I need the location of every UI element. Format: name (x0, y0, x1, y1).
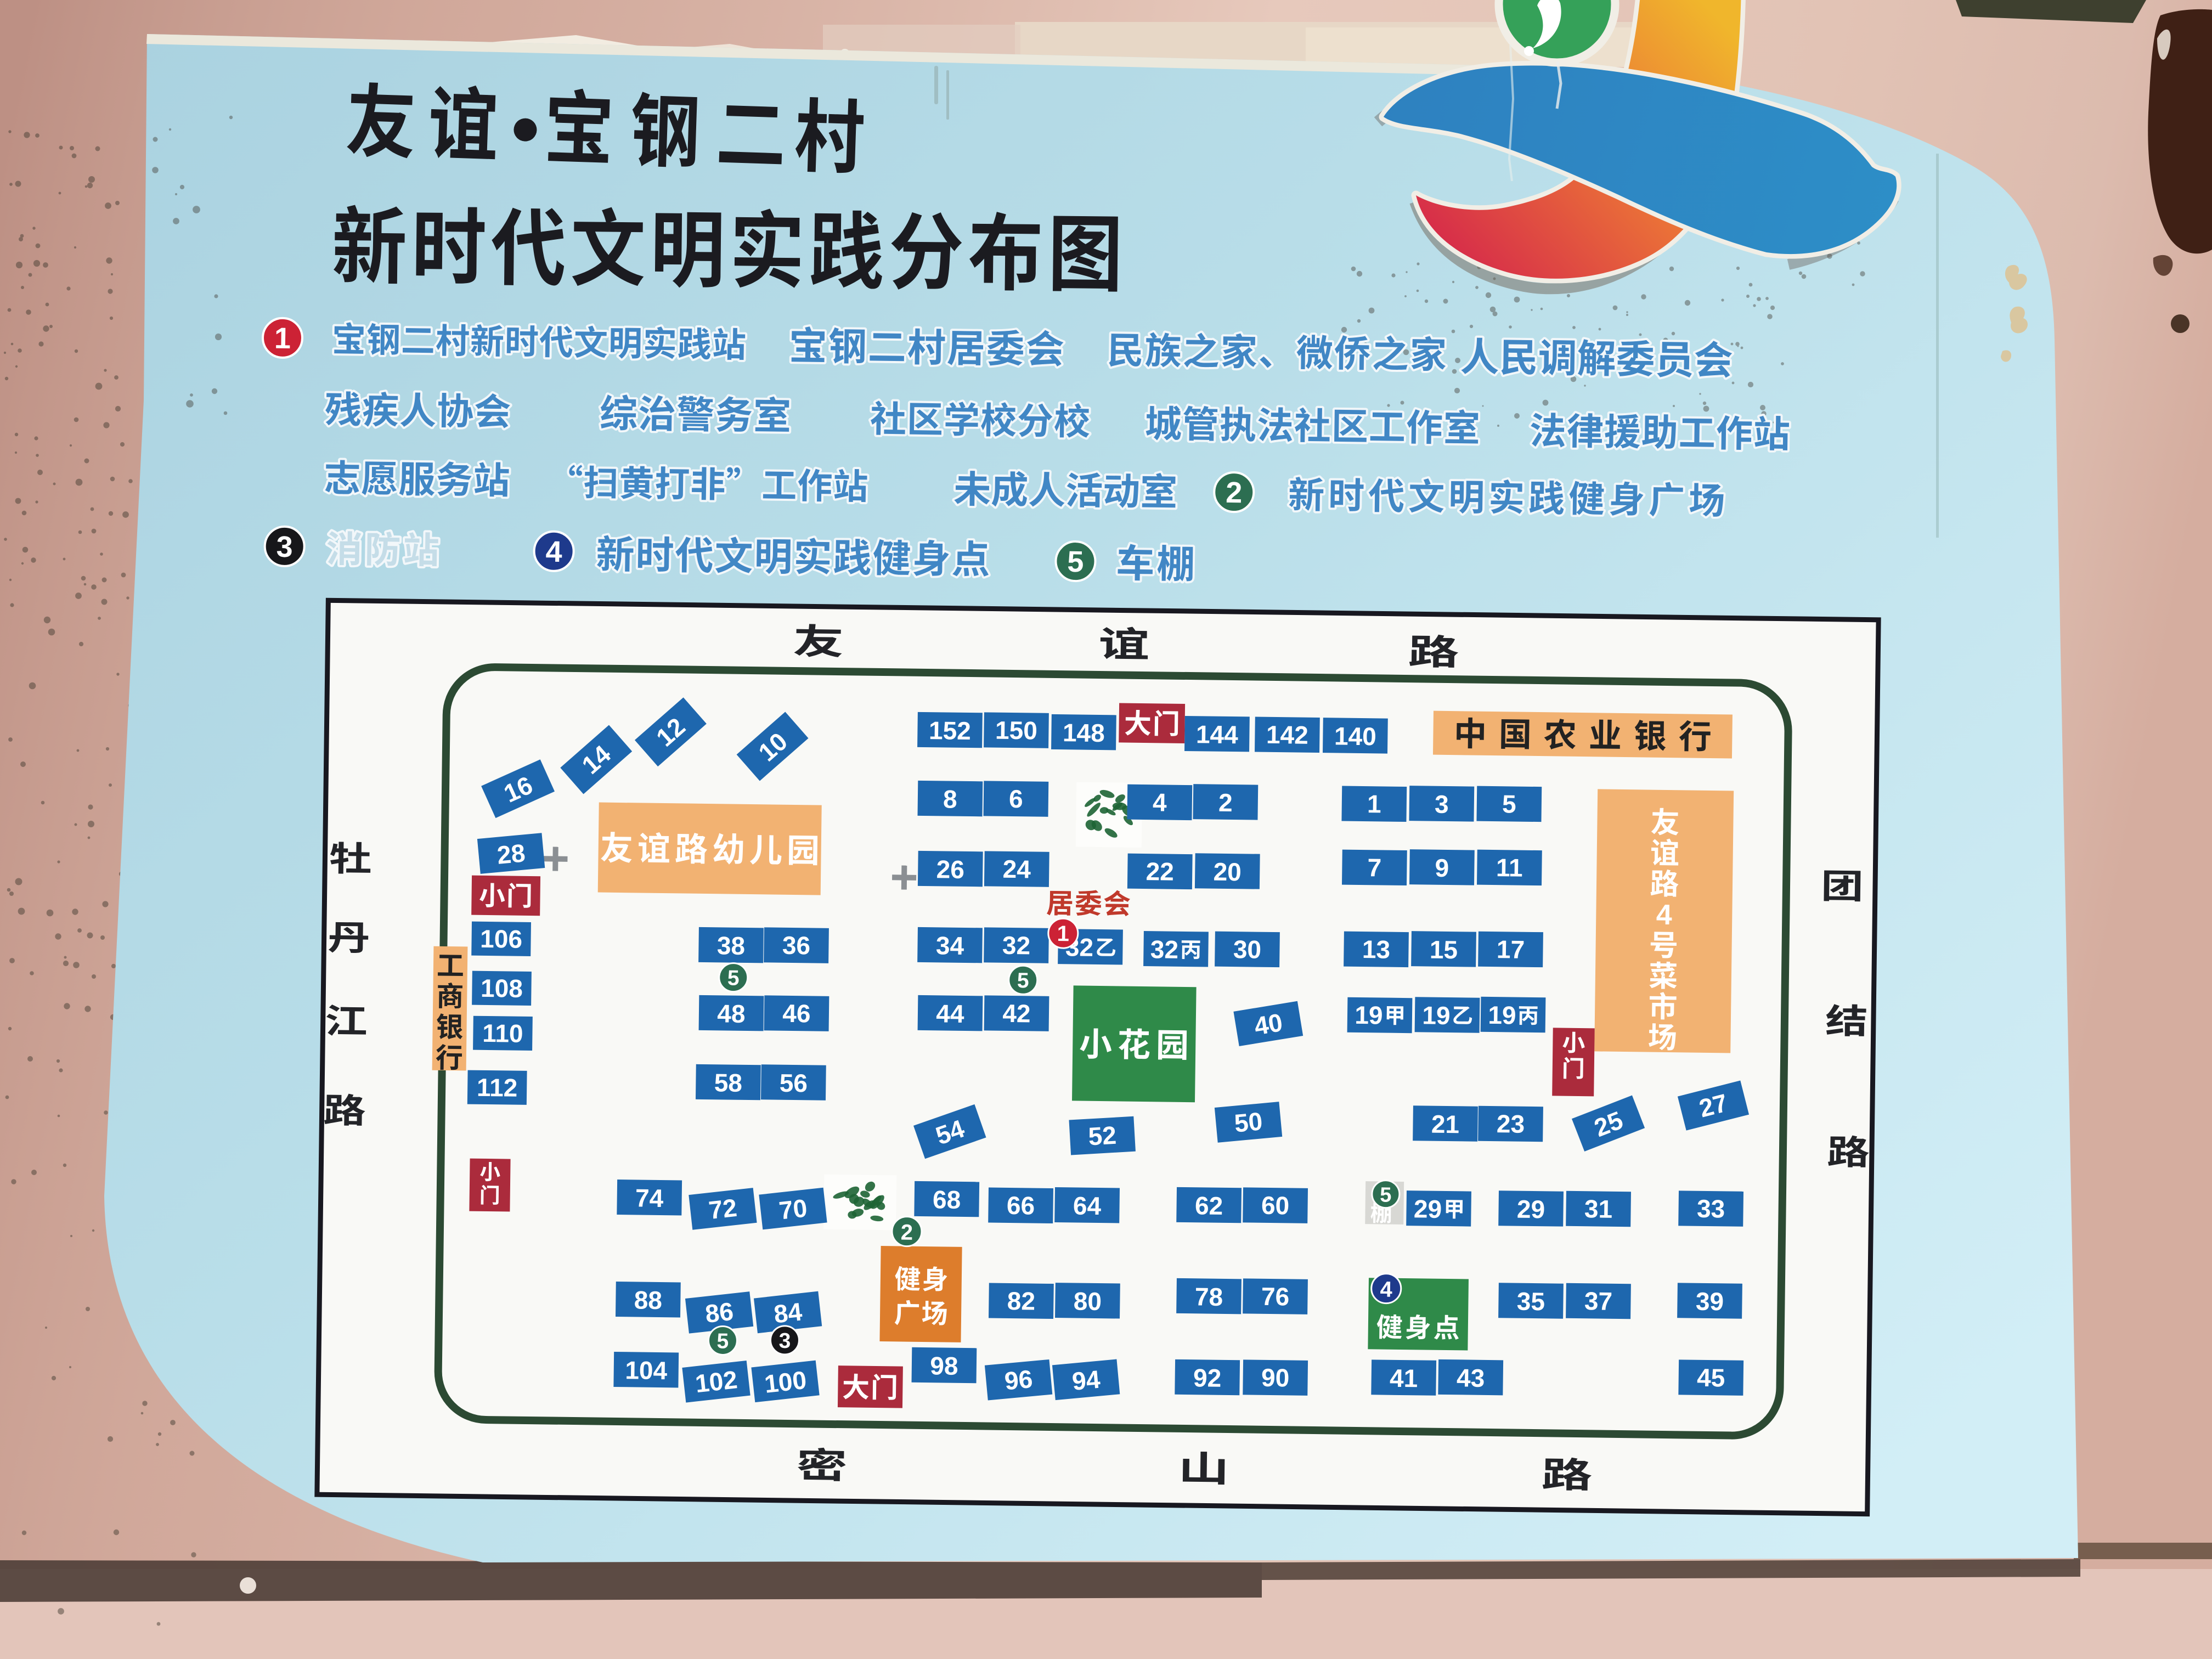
svg-text:1: 1 (274, 322, 291, 355)
svg-text:43: 43 (1457, 1363, 1485, 1392)
svg-text:56: 56 (779, 1069, 808, 1098)
svg-text:60: 60 (1261, 1191, 1290, 1220)
svg-text:5: 5 (1380, 1183, 1392, 1206)
svg-text:8: 8 (943, 785, 957, 813)
svg-text:90: 90 (1261, 1363, 1290, 1392)
svg-text:45: 45 (1697, 1363, 1725, 1392)
svg-text:102: 102 (694, 1365, 739, 1398)
svg-text:50: 50 (1233, 1107, 1264, 1137)
svg-text:23: 23 (1497, 1109, 1525, 1138)
svg-text:82: 82 (1007, 1286, 1035, 1316)
svg-text:76: 76 (1261, 1282, 1290, 1311)
svg-text:80: 80 (1073, 1286, 1102, 1316)
svg-text:5: 5 (1017, 969, 1029, 992)
svg-text:5: 5 (716, 1329, 729, 1353)
svg-text:68: 68 (933, 1185, 961, 1214)
svg-text:24: 24 (1002, 855, 1031, 884)
svg-text:22: 22 (1145, 857, 1174, 886)
svg-text:39: 39 (1696, 1287, 1724, 1316)
svg-text:34: 34 (936, 931, 964, 960)
svg-text:2: 2 (1226, 476, 1243, 509)
svg-text:11: 11 (1496, 853, 1523, 882)
svg-text:28: 28 (496, 838, 527, 869)
svg-text:17: 17 (1497, 935, 1525, 964)
svg-text:33: 33 (1697, 1194, 1725, 1223)
svg-text:110: 110 (482, 1019, 523, 1048)
svg-text:38: 38 (717, 931, 746, 960)
svg-text:46: 46 (782, 999, 811, 1028)
svg-text:4: 4 (1153, 788, 1167, 816)
svg-text:78: 78 (1195, 1282, 1223, 1311)
svg-text:150: 150 (995, 716, 1037, 745)
svg-text:94: 94 (1071, 1364, 1102, 1396)
svg-text:35: 35 (1517, 1287, 1545, 1316)
svg-text:70: 70 (777, 1193, 809, 1224)
svg-text:62: 62 (1195, 1191, 1223, 1220)
svg-text:41: 41 (1390, 1364, 1418, 1393)
svg-text:72: 72 (707, 1193, 738, 1224)
svg-text:42: 42 (1002, 999, 1031, 1028)
svg-text:98: 98 (930, 1351, 958, 1380)
svg-text:44: 44 (936, 999, 964, 1028)
svg-text:13: 13 (1362, 935, 1391, 964)
svg-text:36: 36 (782, 931, 811, 960)
svg-text:4: 4 (545, 535, 562, 568)
svg-text:106: 106 (480, 924, 522, 953)
svg-text:66: 66 (1007, 1191, 1035, 1220)
svg-text:20: 20 (1213, 857, 1242, 887)
svg-text:32: 32 (1150, 935, 1179, 964)
svg-text:40: 40 (1252, 1008, 1285, 1041)
svg-text:108: 108 (481, 974, 523, 1003)
svg-text:19: 19 (1355, 1001, 1383, 1030)
svg-text:86: 86 (704, 1297, 735, 1328)
svg-text:142: 142 (1266, 720, 1308, 749)
svg-text:15: 15 (1430, 935, 1458, 964)
svg-text:19: 19 (1488, 1001, 1516, 1030)
svg-text:74: 74 (635, 1183, 664, 1212)
svg-text:2: 2 (901, 1221, 913, 1245)
svg-text:152: 152 (929, 716, 971, 745)
svg-text:19: 19 (1422, 1001, 1451, 1030)
svg-text:6: 6 (1009, 785, 1023, 813)
svg-text:58: 58 (714, 1068, 742, 1097)
svg-text:7: 7 (1367, 853, 1381, 882)
svg-text:32: 32 (1002, 931, 1031, 960)
svg-text:140: 140 (1334, 721, 1376, 751)
svg-text:48: 48 (717, 999, 746, 1028)
svg-text:5: 5 (727, 967, 740, 990)
svg-text:26: 26 (936, 855, 964, 884)
svg-text:3: 3 (1435, 790, 1449, 819)
svg-text:21: 21 (1431, 1110, 1460, 1139)
svg-text:5: 5 (1067, 545, 1084, 578)
svg-text:31: 31 (1584, 1194, 1613, 1223)
svg-text:3: 3 (778, 1329, 791, 1353)
svg-text:3: 3 (276, 531, 293, 563)
svg-text:144: 144 (1196, 720, 1239, 749)
svg-text:29: 29 (1517, 1195, 1545, 1224)
svg-text:37: 37 (1584, 1286, 1613, 1316)
svg-text:96: 96 (1003, 1364, 1034, 1395)
svg-text:1: 1 (1367, 789, 1381, 818)
svg-text:88: 88 (634, 1285, 662, 1314)
svg-text:4: 4 (1656, 899, 1673, 931)
svg-text:4: 4 (1380, 1278, 1393, 1302)
svg-text:148: 148 (1063, 718, 1105, 747)
svg-text:1: 1 (1057, 922, 1069, 946)
svg-text:29: 29 (1414, 1194, 1442, 1223)
svg-text:104: 104 (625, 1356, 668, 1385)
svg-text:2: 2 (1218, 788, 1233, 817)
svg-text:9: 9 (1435, 854, 1449, 882)
svg-text:100: 100 (763, 1365, 808, 1398)
svg-text:30: 30 (1233, 935, 1262, 964)
svg-text:92: 92 (1193, 1363, 1222, 1392)
svg-text:64: 64 (1073, 1191, 1102, 1220)
svg-text:112: 112 (477, 1073, 518, 1102)
svg-text:84: 84 (772, 1297, 804, 1328)
svg-text:5: 5 (1502, 789, 1516, 818)
svg-text:52: 52 (1087, 1121, 1117, 1151)
